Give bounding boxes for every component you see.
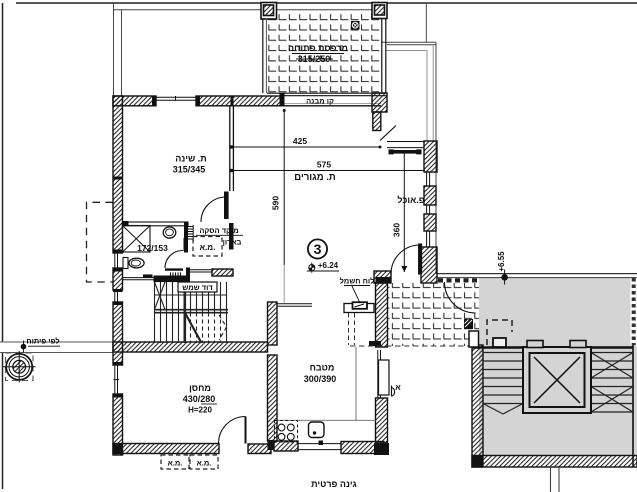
svg-text:גינה פרטית: גינה פרטית [311, 479, 357, 489]
svg-text:575: 575 [317, 160, 331, 170]
svg-text:דוד שמש: דוד שמש [182, 283, 213, 292]
svg-text:300/390: 300/390 [304, 374, 337, 384]
svg-text:מ.א.: מ.א. [197, 459, 212, 468]
svg-text:מטבח: מטבח [310, 363, 335, 373]
svg-text:מוקד הסקה: מוקד הסקה [199, 226, 238, 235]
svg-text:3: 3 [314, 241, 322, 257]
svg-text:360: 360 [392, 223, 402, 237]
svg-text:+6.24: +6.24 [318, 261, 339, 270]
svg-text:430/280: 430/280 [183, 394, 216, 404]
svg-text:לוח חשמל: לוח חשמל [340, 277, 375, 286]
svg-text:בארון: בארון [223, 238, 242, 247]
svg-text:+6.55: +6.55 [497, 251, 506, 272]
svg-text:H=220: H=220 [188, 406, 212, 415]
svg-text:425: 425 [293, 136, 307, 146]
svg-text:מרפסת פתוחה: מרפסת פתוחה [288, 43, 348, 53]
svg-text:590: 590 [271, 196, 281, 210]
svg-text:מחסן: מחסן [189, 383, 211, 393]
svg-text:315/345: 315/345 [173, 165, 206, 175]
svg-text:פ.אוכל: פ.אוכל [397, 195, 424, 205]
svg-text:מ.א.: מ.א. [168, 459, 183, 468]
svg-text:קו מבנה: קו מבנה [306, 97, 334, 106]
svg-text:172/153: 172/153 [137, 243, 168, 253]
svg-text:א: א [395, 383, 401, 392]
svg-text:מ.א.: מ.א. [200, 243, 216, 252]
svg-text:לפי פיתוח: לפי פיתוח [26, 337, 59, 346]
svg-text:ת. שינה: ת. שינה [175, 154, 206, 164]
svg-text:ת. מגורים: ת. מגורים [294, 172, 336, 183]
